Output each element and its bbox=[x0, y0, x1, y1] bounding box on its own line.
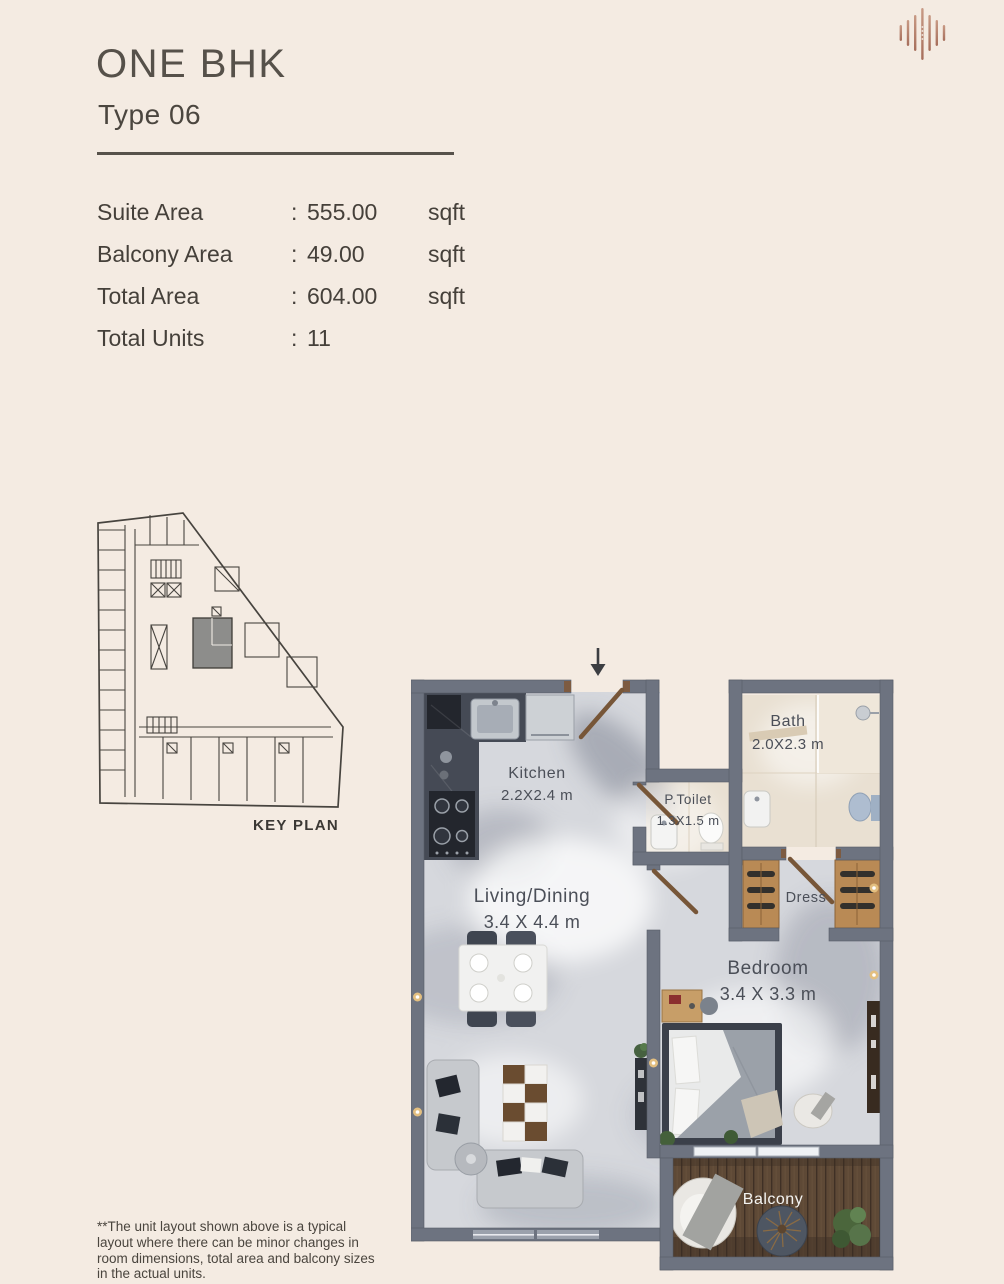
wardrobe-left bbox=[743, 860, 779, 928]
bath-sink bbox=[744, 791, 770, 827]
balcony-glass-door bbox=[758, 1147, 819, 1156]
room-dims-bedroom: 3.4 X 3.3 m bbox=[720, 984, 816, 1004]
detail-unit: sqft bbox=[428, 233, 465, 275]
room-dims-bath: 2.0X2.3 m bbox=[752, 736, 824, 753]
brochure-page: ONE BHK Type 06 Suite Area:555.00 sqft B… bbox=[0, 0, 1004, 1284]
detail-separator: : bbox=[291, 275, 307, 317]
room-label-dress: Dress bbox=[786, 890, 827, 906]
room-dims-living-dining: 3.4 X 4.4 m bbox=[484, 912, 580, 932]
floor-plan-drawing: Kitchen 2.2X2.4 m P.Toilet 1.3X1.5 m Bat… bbox=[411, 645, 895, 1284]
detail-label: Balcony Area bbox=[97, 233, 291, 275]
key-plan-label: KEY PLAN bbox=[253, 817, 339, 834]
page-subtitle: Type 06 bbox=[98, 99, 201, 131]
detail-row-total-area: Total Area:604.00 sqft bbox=[97, 275, 497, 317]
detail-value: 49.00 bbox=[307, 241, 365, 267]
room-label-balcony: Balcony bbox=[743, 1191, 803, 1208]
detail-value: 604.00 bbox=[307, 283, 377, 309]
entry-arrow-icon bbox=[591, 648, 606, 676]
plant bbox=[659, 1131, 675, 1147]
room-dims-kitchen: 2.2X2.4 m bbox=[501, 787, 573, 804]
detail-row-balcony-area: Balcony Area:49.00 sqft bbox=[97, 233, 497, 275]
detail-value: 11 bbox=[307, 325, 331, 351]
detail-unit: sqft bbox=[428, 275, 465, 317]
wardrobe-right bbox=[835, 860, 880, 928]
balcony-glass-door bbox=[694, 1147, 756, 1156]
coffee-table bbox=[503, 1065, 547, 1141]
key-plan-drawing bbox=[95, 505, 347, 850]
room-label-bath: Bath bbox=[770, 713, 805, 730]
detail-separator: : bbox=[291, 191, 307, 233]
detail-value: 555.00 bbox=[307, 199, 377, 225]
stove bbox=[429, 791, 475, 857]
detail-separator: : bbox=[291, 317, 307, 359]
bed bbox=[662, 1023, 783, 1145]
plant bbox=[724, 1130, 738, 1144]
kitchen-appliance bbox=[526, 695, 574, 740]
room-label-living-dining: Living/Dining bbox=[474, 886, 591, 907]
brand-logo-icon bbox=[896, 5, 948, 63]
tv-console-bedroom bbox=[867, 1001, 880, 1113]
detail-unit: sqft bbox=[428, 191, 465, 233]
area-details: Suite Area:555.00 sqft Balcony Area:49.0… bbox=[97, 191, 497, 359]
detail-label: Total Units bbox=[97, 317, 291, 359]
toilet bbox=[849, 793, 871, 821]
title-divider bbox=[97, 152, 454, 155]
room-label-kitchen: Kitchen bbox=[508, 765, 566, 782]
room-label-ptoilet: P.Toilet bbox=[664, 792, 711, 807]
balcony-plant bbox=[832, 1207, 871, 1248]
key-plan: KEY PLAN bbox=[95, 505, 347, 850]
detail-separator: : bbox=[291, 233, 307, 275]
detail-row-total-units: Total Units:11 bbox=[97, 317, 497, 359]
room-dims-ptoilet: 1.3X1.5 m bbox=[657, 813, 720, 828]
detail-row-suite-area: Suite Area:555.00 sqft bbox=[97, 191, 497, 233]
shower-head bbox=[856, 706, 870, 720]
room-label-bedroom: Bedroom bbox=[727, 958, 808, 979]
disclaimer-note: **The unit layout shown above is a typic… bbox=[97, 1219, 382, 1282]
detail-label: Total Area bbox=[97, 275, 291, 317]
detail-label: Suite Area bbox=[97, 191, 291, 233]
page-title: ONE BHK bbox=[96, 42, 287, 87]
